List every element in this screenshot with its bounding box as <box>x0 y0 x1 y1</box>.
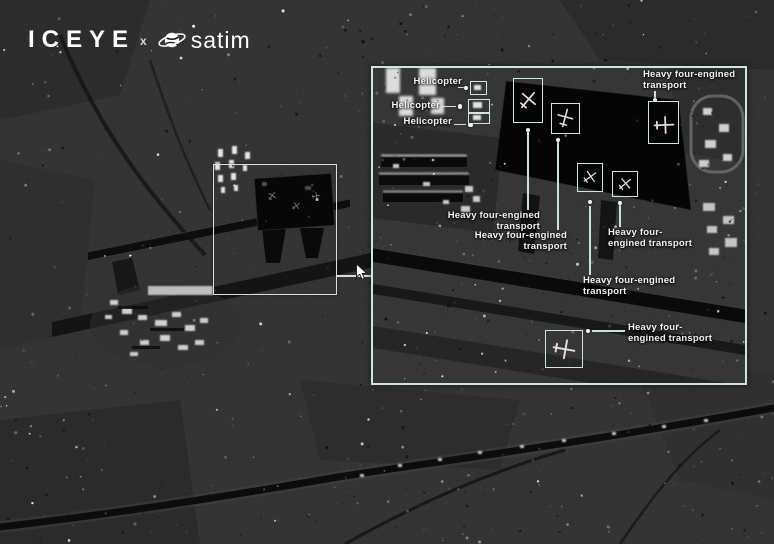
zoom-inset-panel: Helicopter Helicopter Helicopter Heavy f… <box>371 66 747 385</box>
iceye-logo: ICEYE <box>28 28 135 52</box>
sar-annotated-scene: ICEYE x satim <box>0 0 774 544</box>
satim-logo-icon <box>157 26 187 54</box>
detection-box-helicopter-2 <box>468 99 490 113</box>
leader-line-transport-topright <box>654 91 655 98</box>
label-transport-b: Heavy four-enginedtransport <box>475 231 567 252</box>
detection-box-helicopter-1 <box>470 81 487 95</box>
collab-x-separator: x <box>140 34 147 48</box>
leader-line-helicopter-3 <box>454 124 466 125</box>
label-transport-a: Heavy four-enginedtransport <box>448 211 540 232</box>
satim-logo-text: satim <box>191 29 251 52</box>
detection-box-transport-2 <box>551 103 580 134</box>
label-transport-d: Heavy four-enginedtransport <box>583 276 675 297</box>
detection-box-transport-5 <box>612 171 638 197</box>
leader-line-transport-a <box>527 132 528 210</box>
leader-line-helicopter-2 <box>442 106 456 107</box>
detection-box-transport-6 <box>545 330 583 368</box>
label-transport-topright: Heavy four-enginedtransport <box>643 70 735 91</box>
label-transport-e: Heavy four-engined transport <box>628 323 712 344</box>
detection-box-transport-4 <box>577 163 603 192</box>
leader-dot-helicopter-2 <box>458 104 463 109</box>
leader-dot-helicopter-3 <box>468 123 473 128</box>
leader-line-transport-d <box>589 206 590 275</box>
label-helicopter-3: Helicopter <box>404 117 452 128</box>
leader-dot-helicopter-1 <box>464 86 469 91</box>
leader-line-transport-b <box>557 142 558 230</box>
leader-line-transport-e <box>592 330 625 331</box>
mouse-cursor-icon <box>355 263 371 282</box>
area-of-interest-rect <box>213 164 337 295</box>
label-helicopter-2: Helicopter <box>392 101 440 112</box>
detection-box-transport-3 <box>648 101 679 144</box>
detection-box-transport-1 <box>513 78 543 123</box>
leader-line-transport-c <box>619 205 620 227</box>
label-helicopter-1: Helicopter <box>414 77 462 88</box>
label-transport-c: Heavy four-engined transport <box>608 228 692 249</box>
brand-logos: ICEYE x satim <box>28 26 251 54</box>
